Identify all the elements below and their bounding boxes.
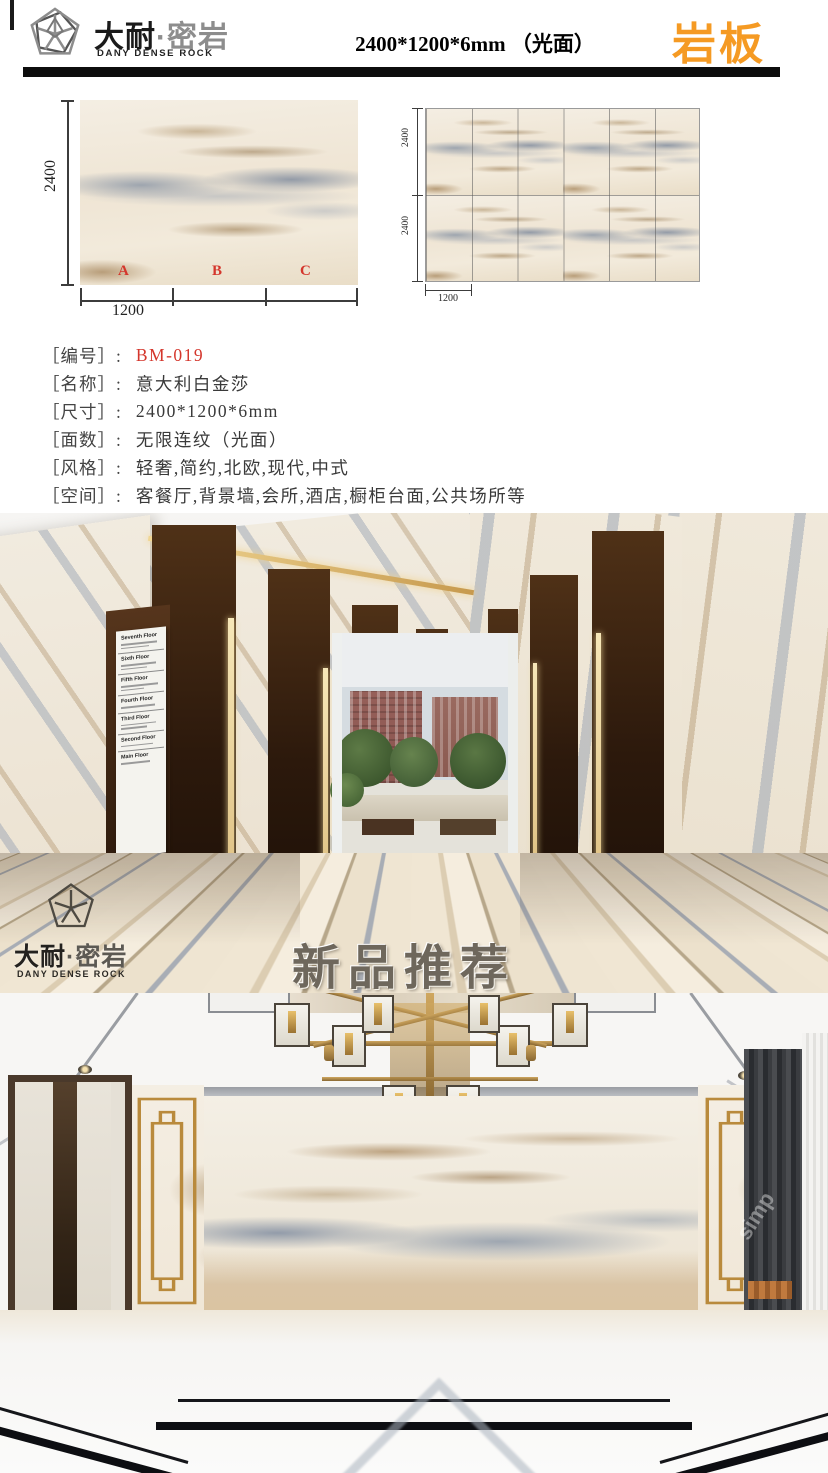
tree (450, 733, 506, 789)
chandelier-lantern (468, 995, 500, 1033)
height-dim-label: 2400 (42, 160, 60, 192)
watermark-brand-separator: · (66, 943, 75, 971)
lobby-table (362, 819, 414, 835)
spec-value-code: BM-019 (136, 345, 204, 366)
tiled-width-label: 1200 (425, 293, 471, 304)
spec-row-style: ［风格］: 轻奢,简约,北欧,现代,中式 (42, 453, 802, 481)
brand-logo-icon (26, 5, 84, 63)
directory-text-bar (121, 687, 144, 691)
lantern-candle (566, 1011, 574, 1033)
directory-row: Main Floor (118, 748, 164, 769)
width-tick-3 (356, 288, 358, 306)
watermark-brand-en: DANY DENSE ROCK (17, 969, 126, 979)
width-tick-2 (265, 288, 267, 306)
vista-column (508, 633, 518, 878)
directory-text-bar (121, 645, 149, 649)
spec-row-faces: ［面数］: 无限连纹（光面） (42, 425, 802, 453)
spec-label: ［风格］: (42, 455, 122, 480)
floor-reflection-right (520, 853, 828, 993)
chandelier-lantern (496, 1025, 530, 1067)
header-size-title: 2400*1200*6mm （光面） (320, 28, 630, 58)
lobby-render-image: Seventh Floor Sixth Floor Fifth Floor Fo… (0, 513, 828, 993)
width-dim-label: 1200 (98, 302, 158, 320)
directory-text-bar (121, 666, 147, 670)
new-product-watermark: 新品推荐 (292, 928, 516, 993)
spec-row-space: ［空间］: 客餐厅,背景墙,会所,酒店,橱柜台面,公共场所等 (42, 481, 802, 509)
tile-grid-lines (425, 108, 700, 282)
tree (390, 737, 438, 787)
chandelier-finial (324, 1045, 334, 1061)
feature-wall-marble (196, 1096, 704, 1310)
lobby-sofa (340, 795, 510, 821)
spec-row-name: ［名称］: 意大利白金莎 (42, 369, 802, 397)
door-glass-strip (53, 1082, 77, 1343)
height-dim-line (67, 100, 69, 285)
tiled-height-label-0: 2400 (401, 128, 411, 147)
brand-name-en: DANY DENSE ROCK (97, 48, 214, 59)
spec-value: 意大利白金莎 (136, 371, 250, 396)
spec-label: ［空间］: (42, 483, 122, 508)
spec-label: ［尺寸］: (42, 399, 122, 424)
height-dim-tick-top (61, 100, 74, 102)
header-divider-bar (23, 67, 780, 77)
watermark-brand-secondary: 密岩 (75, 943, 127, 971)
face-label-c: C (300, 263, 311, 280)
height-dim-tick-bottom (61, 284, 74, 286)
top-left-tick (10, 0, 14, 30)
lobby-table (440, 819, 496, 835)
directory-text-bar (121, 704, 155, 709)
vista-column (332, 633, 342, 878)
lantern-candle (480, 1003, 488, 1025)
spec-label: ［名称］: (42, 371, 122, 396)
lantern-candle (509, 1033, 517, 1055)
watermark-logo-icon (44, 881, 98, 935)
left-pillar-gold-frame (134, 1095, 200, 1307)
chandelier-finial (526, 1045, 536, 1061)
lobby-center-vista (332, 633, 518, 878)
directory-sign: Seventh Floor Sixth Floor Fifth Floor Fo… (116, 626, 166, 857)
watermark-brand-cn: 大耐·密岩 (14, 937, 127, 973)
spec-row-size: ［尺寸］: 2400*1200*6mm (42, 397, 802, 425)
lantern-candle (374, 1003, 382, 1025)
header-category-badge: 岩板 (672, 8, 766, 72)
width-tick-1 (172, 288, 174, 306)
single-slab-image (80, 100, 358, 285)
tiled-height-tick-1 (412, 195, 423, 196)
ceiling-spotlight (78, 1065, 92, 1074)
spec-value: 2400*1200*6mm (136, 401, 279, 422)
spec-row-code: ［编号］: BM-019 (42, 341, 802, 369)
living-render-image: simp (0, 993, 828, 1473)
chandelier-lantern (552, 1003, 588, 1047)
face-label-b: B (212, 263, 222, 280)
chandelier-lantern (362, 995, 394, 1033)
face-label-a: A (118, 263, 129, 280)
tiled-width-dim-line (425, 290, 471, 291)
lantern-candle (345, 1033, 353, 1055)
tiled-height-tick-0 (412, 108, 423, 109)
product-sheet-page: 大耐·密岩 DANY DENSE ROCK 2400*1200*6mm （光面）… (0, 0, 828, 1473)
spec-value: 客餐厅,背景墙,会所,酒店,橱柜台面,公共场所等 (136, 483, 526, 508)
spec-value: 轻奢,简约,北欧,现代,中式 (136, 455, 350, 480)
directory-text-bar (121, 725, 147, 729)
blind-slats-accent (748, 1281, 792, 1299)
directory-text-bar (121, 760, 150, 765)
door-light-panel (15, 1082, 53, 1343)
lantern-candle (288, 1011, 296, 1033)
spec-value: 无限连纹（光面） (136, 427, 288, 452)
tiled-height-tick-2 (412, 281, 423, 282)
tiled-height-label-1: 2400 (401, 216, 411, 235)
tiled-width-tick-1 (471, 284, 472, 296)
directory-floor-label: Main Floor (121, 751, 157, 760)
door-light-panel (77, 1082, 111, 1343)
chandelier-lantern (274, 1003, 310, 1047)
width-tick-0 (80, 288, 82, 306)
spec-label: ［编号］: (42, 343, 122, 368)
spec-label: ［面数］: (42, 427, 122, 452)
chandelier-lantern (332, 1025, 366, 1067)
watermark-brand-primary: 大耐 (14, 943, 66, 971)
